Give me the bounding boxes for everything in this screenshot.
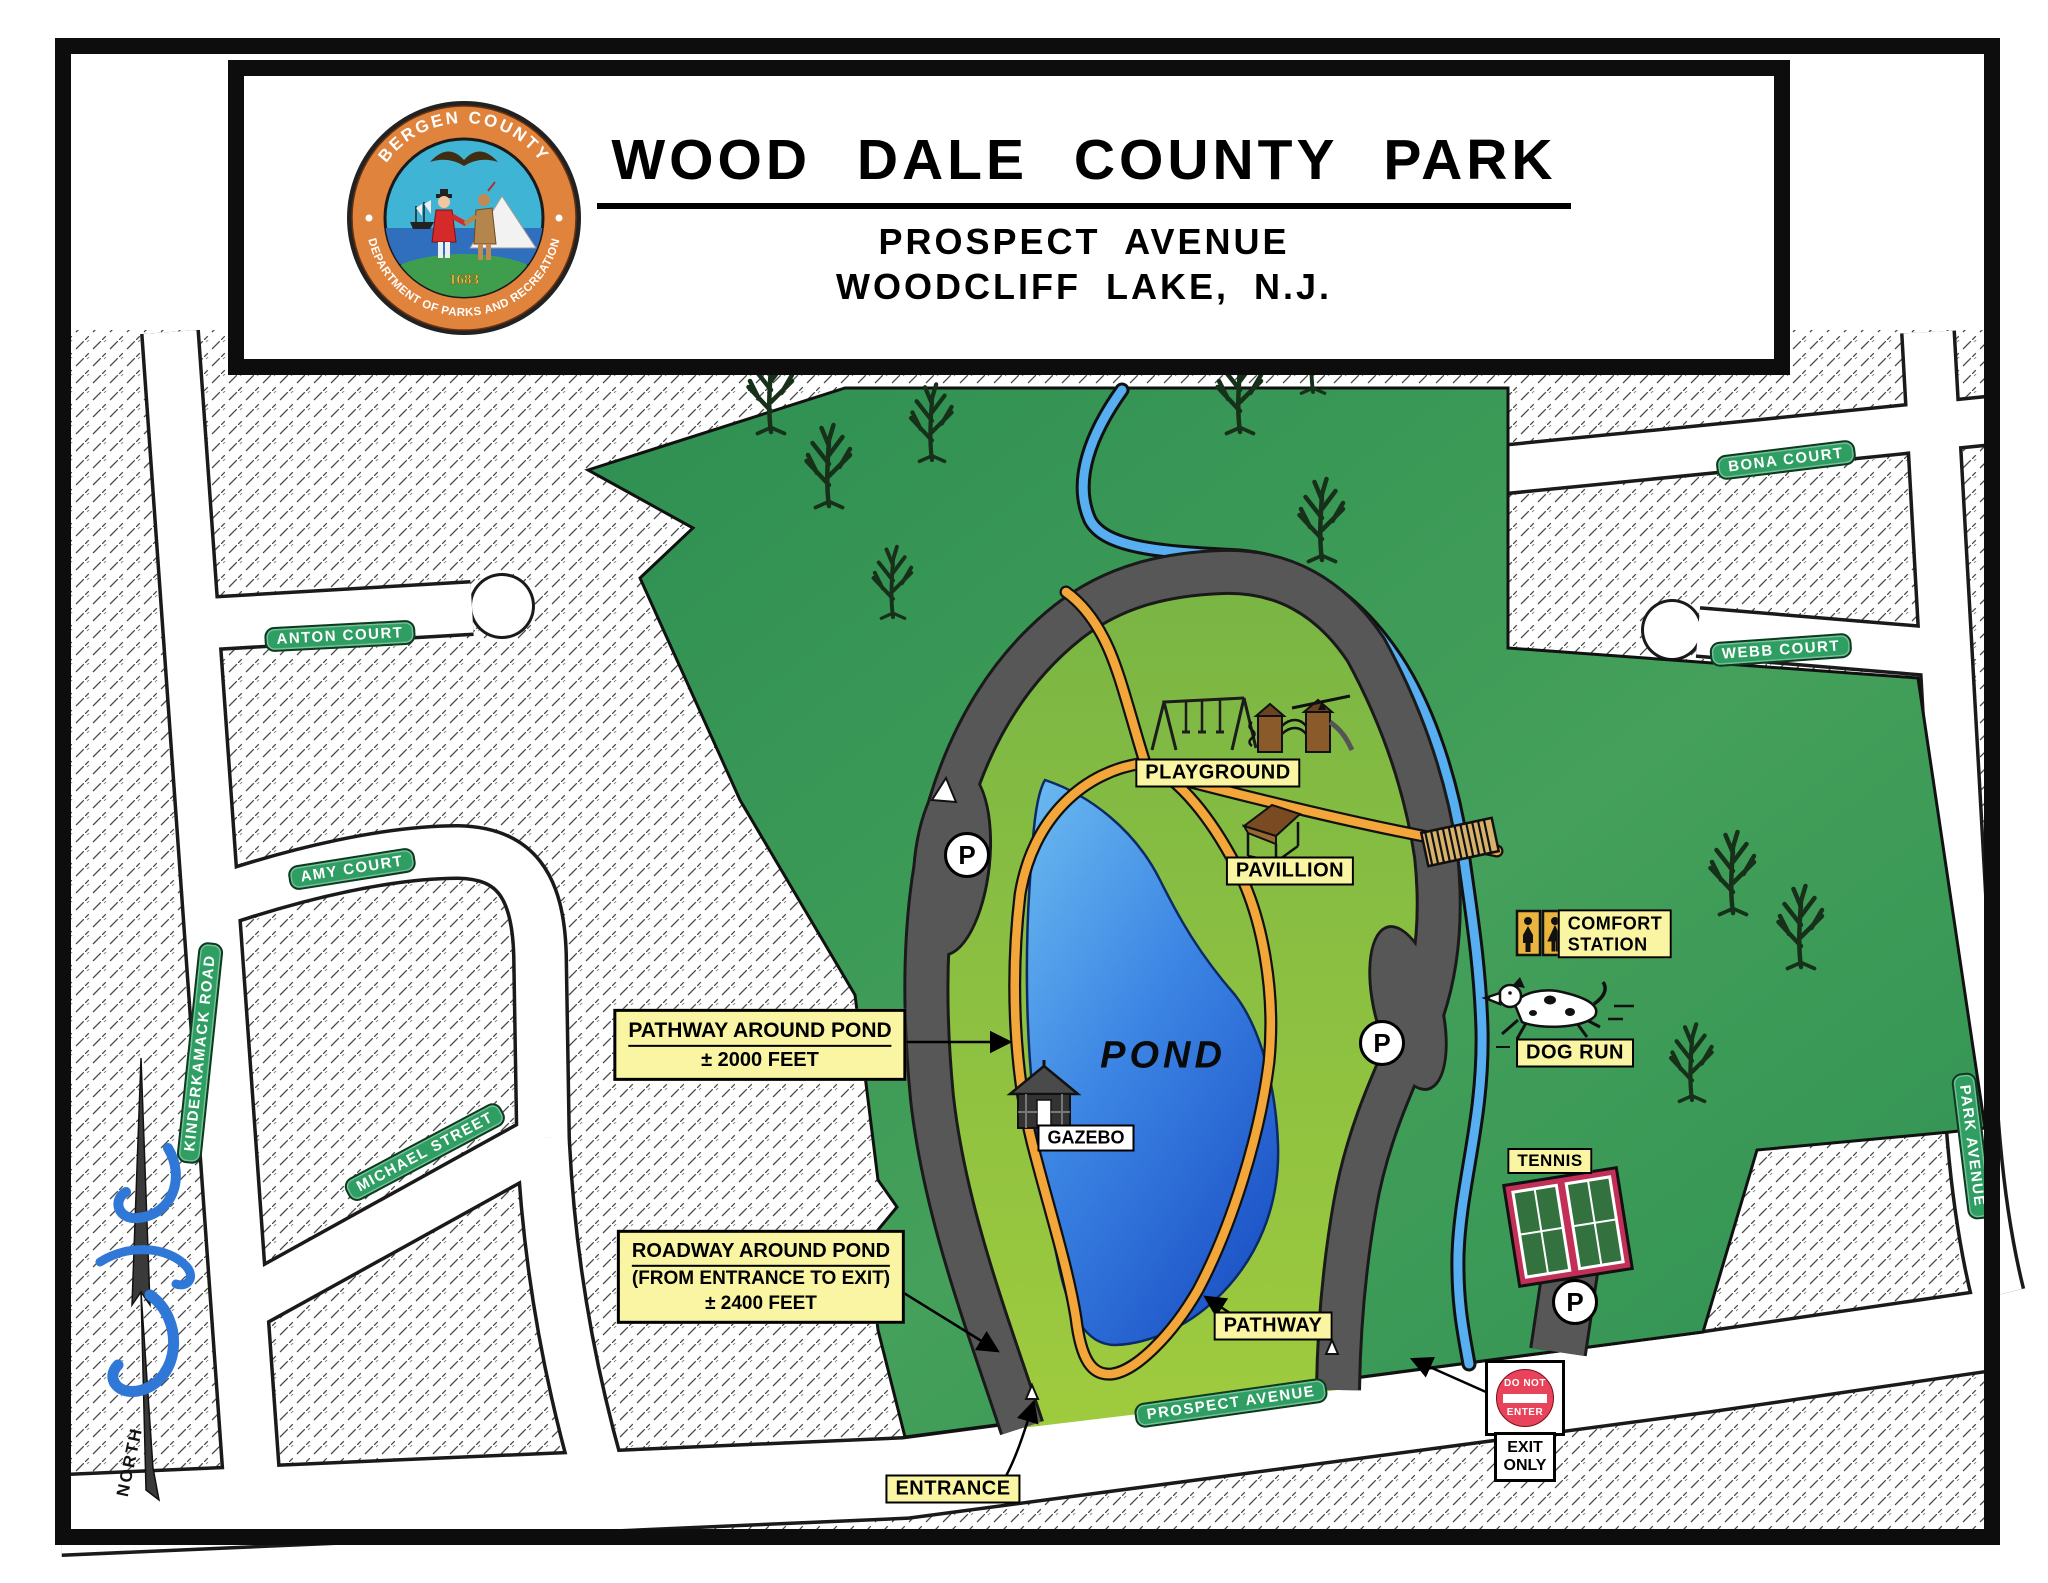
parking-marker-east: P [1359,1020,1405,1066]
label-playground: PLAYGROUND [1135,759,1300,788]
exit-only-sign: EXIT ONLY [1494,1432,1556,1482]
label-dog-run: DOG RUN [1516,1039,1634,1068]
page-title: WOOD DALE COUNTY PARK [597,127,1570,209]
exit-line1: EXIT [1507,1439,1543,1457]
do-not-enter-icon: DO NOT ENTER [1496,1369,1554,1427]
title-address-line1: PROSPECT AVENUE [878,219,1289,264]
label-pond: POND [1100,1035,1226,1078]
label-pathway: PATHWAY [1214,1312,1333,1341]
label-pavillion: PAVILLION [1226,857,1354,886]
label-gazebo: GAZEBO [1037,1125,1134,1152]
park-map-page: 1683 BERGEN COUNTY DEPARTMENT OF PARKS A… [0,0,2048,1583]
do-not-enter-sign: DO NOT ENTER [1485,1360,1565,1436]
roadway-callout-line2: (FROM ENTRANCE TO EXIT) [632,1267,890,1292]
pathway-callout-line2: ± 2000 FEET [628,1047,891,1073]
title-block: 1683 BERGEN COUNTY DEPARTMENT OF PARKS A… [228,60,1790,375]
exit-line2: ONLY [1504,1457,1547,1475]
callout-roadway-around-pond: ROADWAY AROUND POND (FROM ENTRANCE TO EX… [617,1230,905,1324]
callout-pathway-around-pond: PATHWAY AROUND POND ± 2000 FEET [613,1009,906,1081]
label-entrance: ENTRANCE [885,1475,1020,1504]
parking-marker-tennis: P [1552,1279,1598,1325]
comfort-line1: COMFORT [1568,913,1662,934]
tennis-courts-icon [1504,1168,1633,1287]
roadway-callout-line1: ROADWAY AROUND POND [632,1238,890,1267]
title-address-line2: WOODCLIFF LAKE, N.J. [836,264,1332,309]
seal-year: 1683 [449,272,479,288]
label-tennis: TENNIS [1507,1148,1592,1174]
dne-bar [1503,1394,1547,1403]
label-comfort-station: COMFORT STATION [1558,909,1672,958]
dne-text-top: DO NOT [1497,1378,1553,1389]
parking-marker-west: P [944,832,990,878]
dne-text-bottom: ENTER [1497,1407,1553,1418]
roadway-callout-line3: ± 2400 FEET [632,1292,890,1317]
comfort-line2: STATION [1568,934,1662,955]
pathway-callout-line1: PATHWAY AROUND POND [628,1017,891,1047]
title-texts: WOOD DALE COUNTY PARK PROSPECT AVENUE WO… [544,86,1624,349]
